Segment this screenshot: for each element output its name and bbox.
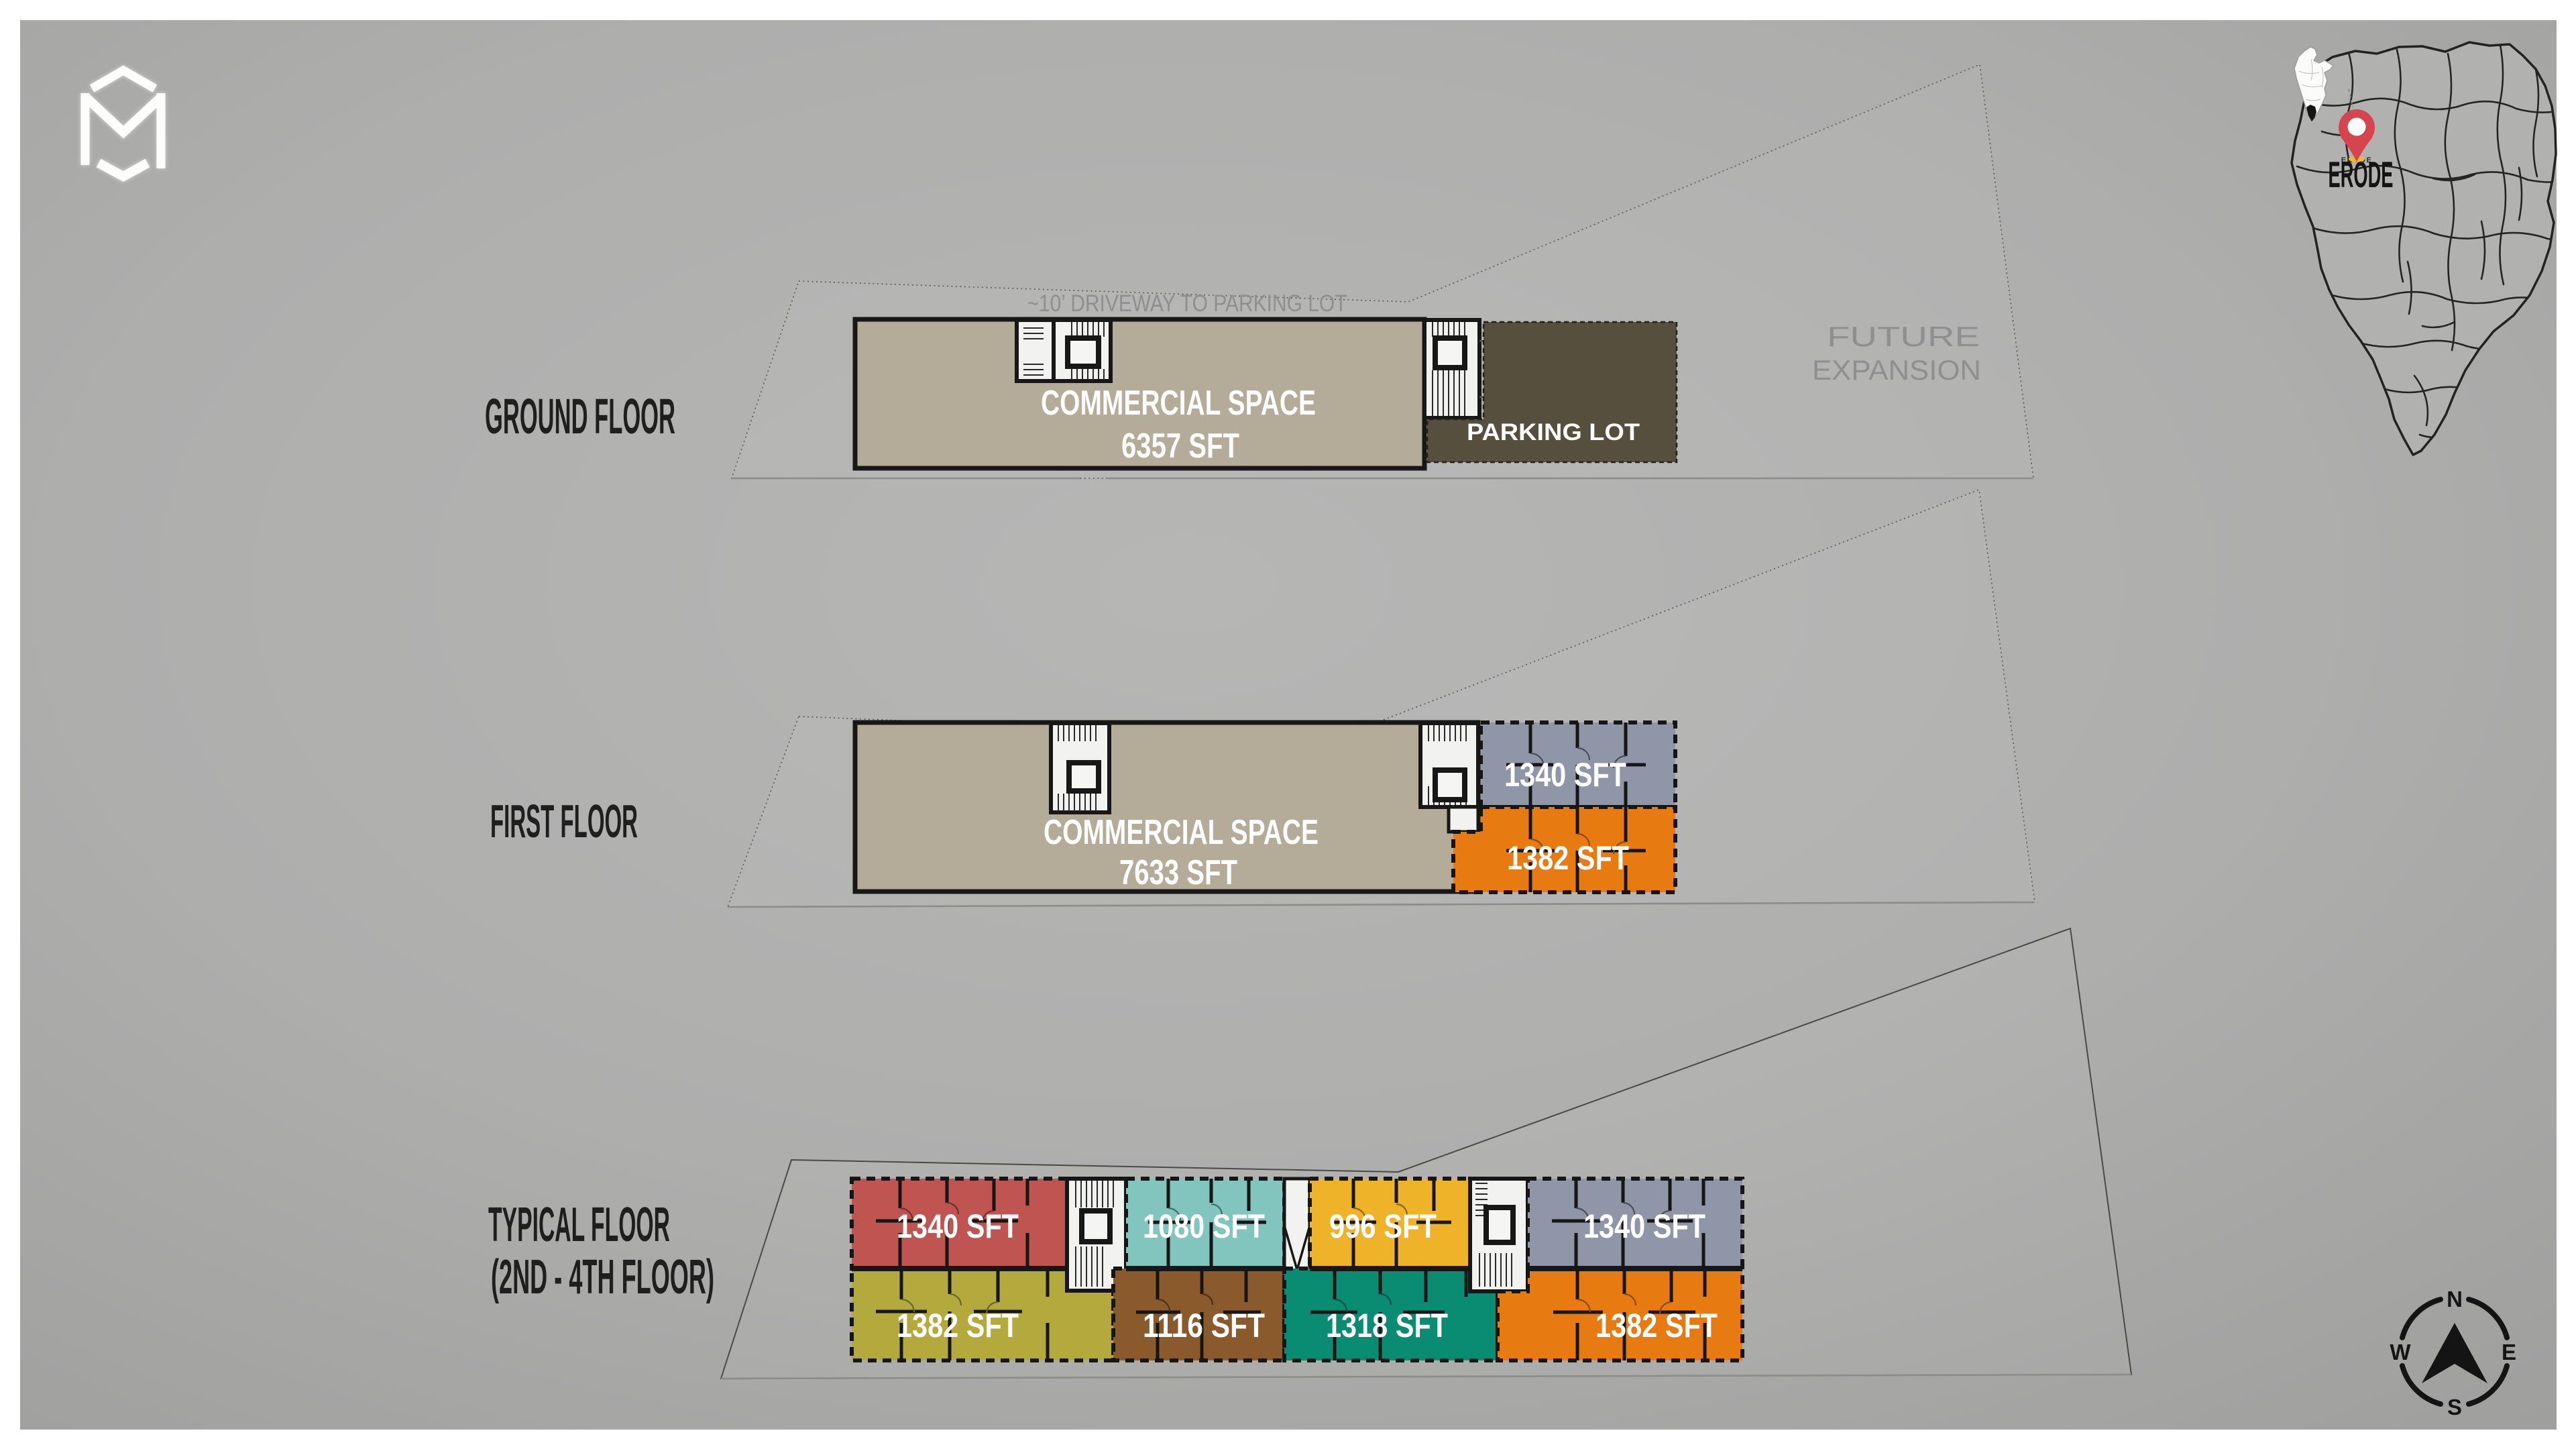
svg-text:~10’ DRIVEWAY TO PARKING LOT: ~10’ DRIVEWAY TO PARKING LOT — [1027, 290, 1347, 317]
svg-text:E: E — [2502, 1340, 2516, 1364]
svg-text:1318 SFT: 1318 SFT — [1326, 1307, 1448, 1344]
svg-text:(2ND - 4TH FLOOR): (2ND - 4TH FLOOR) — [491, 1250, 714, 1304]
svg-text:1080 SFT: 1080 SFT — [1143, 1207, 1265, 1245]
svg-text:6357 SFT: 6357 SFT — [1121, 427, 1239, 466]
svg-text:PARKING LOT: PARKING LOT — [1467, 419, 1640, 445]
svg-text:COMMERCIAL SPACE: COMMERCIAL SPACE — [1044, 813, 1319, 852]
svg-text:FUTURE: FUTURE — [1827, 321, 1980, 352]
svg-text:1382 SFT: 1382 SFT — [1507, 839, 1629, 877]
svg-text:W: W — [2390, 1340, 2411, 1364]
svg-text:1382 SFT: 1382 SFT — [897, 1307, 1019, 1344]
svg-text:S: S — [2447, 1395, 2462, 1419]
svg-text:1340 SFT: 1340 SFT — [1583, 1207, 1705, 1245]
svg-text:N: N — [2447, 1287, 2463, 1311]
svg-text:FIRST FLOOR: FIRST FLOOR — [490, 795, 638, 847]
svg-text:1382 SFT: 1382 SFT — [1595, 1307, 1718, 1344]
svg-text:GROUND FLOOR: GROUND FLOOR — [485, 388, 675, 444]
svg-text:EXPANSION: EXPANSION — [1812, 354, 1981, 386]
svg-text:TYPICAL FLOOR: TYPICAL FLOOR — [488, 1198, 670, 1252]
svg-text:COMMERCIAL SPACE: COMMERCIAL SPACE — [1041, 384, 1316, 423]
svg-text:1340 SFT: 1340 SFT — [1504, 756, 1626, 794]
svg-text:1340 SFT: 1340 SFT — [897, 1207, 1019, 1245]
svg-text:7633 SFT: 7633 SFT — [1119, 853, 1237, 892]
svg-text:1116 SFT: 1116 SFT — [1143, 1307, 1265, 1344]
svg-text:ERODE: ERODE — [2329, 154, 2394, 195]
svg-text:996 SFT: 996 SFT — [1329, 1207, 1437, 1245]
